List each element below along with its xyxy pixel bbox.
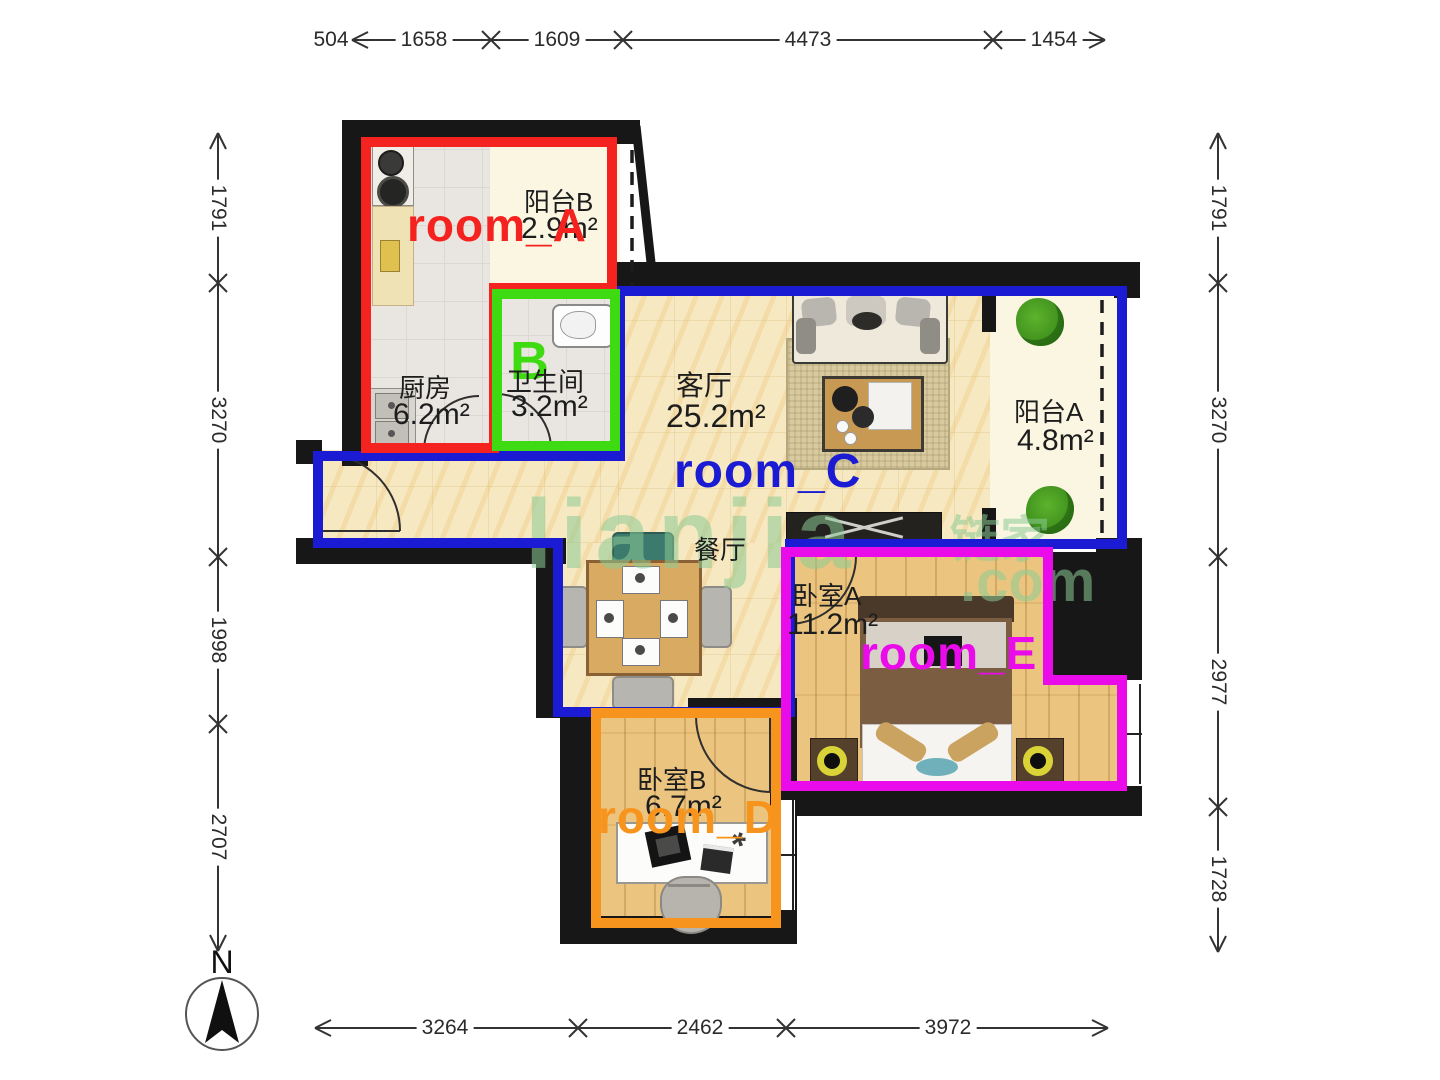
dim-right-1728: 1728 <box>1206 851 1230 908</box>
sofa-side-pillow-right <box>920 318 940 354</box>
compass-circle <box>186 978 258 1050</box>
bed-pillow-teal <box>916 758 958 776</box>
dim-top-1454: 1454 <box>1026 28 1083 52</box>
speaker-left <box>817 746 847 776</box>
teapot-small <box>852 406 874 428</box>
stove-burner-large <box>377 176 409 208</box>
dim-right-3270: 3270 <box>1206 392 1230 449</box>
bathroom-area: 3.2m² <box>511 390 588 424</box>
teacup-1 <box>836 420 849 433</box>
room-a-tag: room_A <box>407 198 587 252</box>
dim-left-1791: 1791 <box>206 180 230 237</box>
room-d-tag: room_D <box>598 790 778 844</box>
dim-right-2977: 2977 <box>1206 654 1230 711</box>
wall-balcony-a-frame-top <box>982 296 996 332</box>
balcony-a-area: 4.8m² <box>1017 424 1094 458</box>
dim-bottom-3972: 3972 <box>920 1016 977 1040</box>
teapot-large <box>832 386 858 412</box>
plate-south <box>635 645 645 655</box>
dim-left-1998: 1998 <box>206 612 230 669</box>
dim-left-3270: 3270 <box>206 392 230 449</box>
stove-burner-small <box>378 150 404 176</box>
sofa-tray <box>852 312 882 330</box>
north-arrow-icon <box>205 980 239 1043</box>
dim-bottom-3264: 3264 <box>417 1016 474 1040</box>
wall-entry-stub <box>296 440 322 464</box>
bedroom-a-window <box>1124 684 1142 784</box>
dim-left-2707: 2707 <box>206 809 230 866</box>
dining-chair-bottom <box>612 676 674 710</box>
dining-chair-left <box>556 586 588 648</box>
dim-top-1609: 1609 <box>529 28 586 52</box>
toilet-bowl <box>560 311 596 339</box>
bedroom-b-window <box>777 800 795 910</box>
plate-west <box>604 613 614 623</box>
room-e-tag: room_E <box>860 626 1037 680</box>
wall-bedroom-b-left <box>560 710 594 944</box>
north-label: N <box>210 944 233 981</box>
room-c-tag: room_C <box>674 444 861 499</box>
wall-top-living <box>614 262 1140 292</box>
desk-chair-seatline <box>668 884 710 887</box>
wall-top-right-corner <box>1114 262 1140 298</box>
living-room-area: 25.2m² <box>666 398 766 435</box>
plate-east <box>668 613 678 623</box>
dining-room-label: 餐厅 <box>694 530 746 567</box>
wall-top-kitchen <box>342 120 640 144</box>
dim-top-504: 504 <box>308 28 353 52</box>
watermark-suffix: .com <box>960 548 1095 615</box>
kitchen-area: 6.2m² <box>393 398 470 432</box>
speaker-right <box>1023 746 1053 776</box>
cutting-board <box>380 240 400 272</box>
dining-chair-right <box>700 586 732 648</box>
dim-top-4473: 4473 <box>780 28 837 52</box>
dim-bottom-2462: 2462 <box>672 1016 729 1040</box>
plant-top <box>1016 298 1064 346</box>
coffee-table-tray <box>868 382 912 430</box>
dim-right-1791: 1791 <box>1206 180 1230 237</box>
wall-bedroom-a-bottom <box>770 786 1142 816</box>
dim-top-1658: 1658 <box>396 28 453 52</box>
floor-plan-canvas: * lianjia 链家 .com <box>0 0 1440 1080</box>
wall-left-kitchen <box>342 120 368 466</box>
sofa-side-pillow-left <box>796 318 816 354</box>
